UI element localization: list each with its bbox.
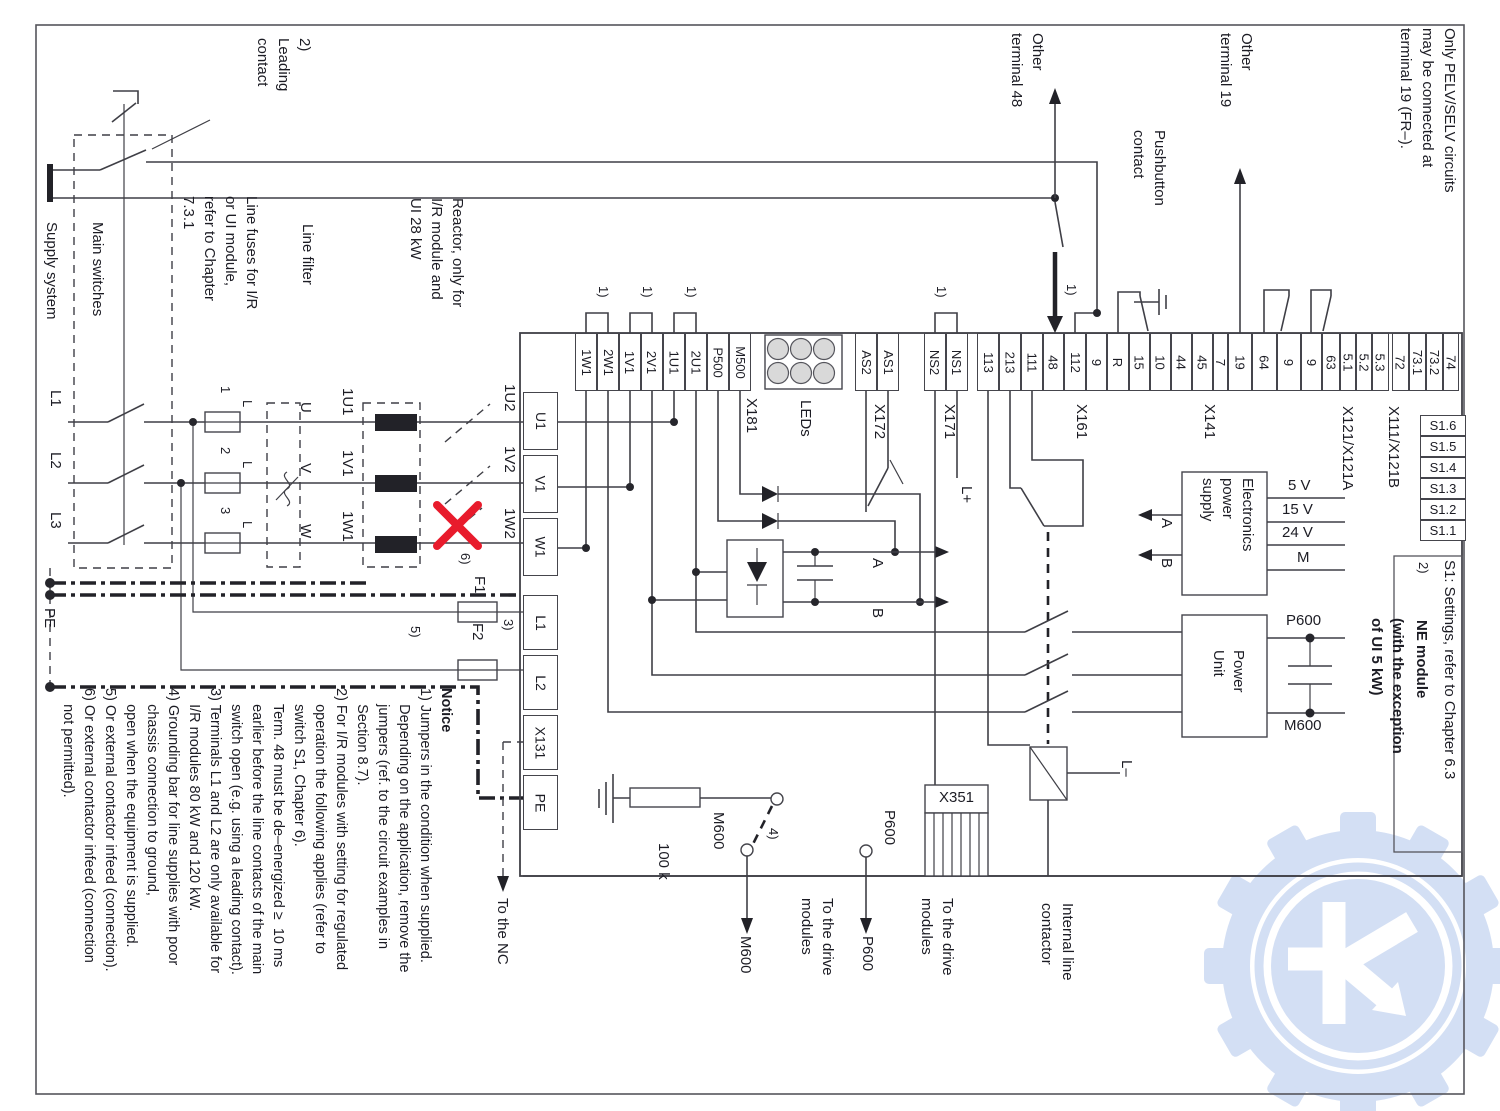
terminal-l1: L1 — [523, 595, 558, 650]
terminal-AS2: AS2 — [855, 333, 877, 391]
watermark-gear-icon — [1204, 812, 1500, 1111]
terminal-9: 9 — [1086, 333, 1107, 391]
terminal-1W1: 1W1 — [575, 333, 597, 391]
terminal-NS2: NS2 — [924, 333, 946, 391]
terminal-M500: M500 — [729, 333, 751, 391]
switch-s1-4: S1.4 — [1420, 457, 1466, 478]
schematic-page: { "ann": { "leading_contact": "2)\nLeadi… — [0, 0, 1500, 1111]
terminal-x131: X131 — [523, 715, 558, 770]
terminal-63: 63 — [1322, 333, 1340, 391]
notice-title: Notice — [438, 688, 454, 732]
terminal-w1: W1 — [523, 518, 558, 576]
terminal-2V1: 2V1 — [641, 333, 663, 391]
terminal-9: 9 — [1277, 333, 1301, 391]
terminal-u1: U1 — [523, 392, 558, 450]
terminal-pe: PE — [523, 775, 558, 830]
terminal-113: 113 — [977, 333, 999, 391]
red-cross-icon — [437, 505, 478, 546]
terminal-P500: P500 — [707, 333, 729, 391]
line-contactor-section — [988, 391, 1182, 876]
terminal-NS1: NS1 — [946, 333, 968, 391]
terminal-5.2: 5.2 — [1356, 333, 1372, 391]
label-p600-dclink: P600 — [1286, 612, 1321, 629]
terminal-1V1: 1V1 — [619, 333, 641, 391]
terminal-v1: V1 — [523, 455, 558, 513]
terminal-1U1: 1U1 — [663, 333, 685, 391]
terminal-112: 112 — [1064, 333, 1086, 391]
terminal-15: 15 — [1129, 333, 1150, 391]
label-x351: X351 — [925, 789, 988, 806]
terminal-19: 19 — [1228, 333, 1252, 391]
terminal-111: 111 — [1021, 333, 1043, 391]
terminal-213: 213 — [999, 333, 1021, 391]
label-15v: 15 V — [1282, 501, 1313, 518]
terminal-64: 64 — [1252, 333, 1277, 391]
terminal-2W1: 2W1 — [597, 333, 619, 391]
terminal-73.2: 73.2 — [1426, 333, 1443, 391]
terminal-2U1: 2U1 — [685, 333, 707, 391]
terminal-9: 9 — [1301, 333, 1322, 391]
terminal-AS1: AS1 — [877, 333, 899, 391]
switch-s1-5: S1.5 — [1420, 436, 1466, 457]
label-m600-dclink: M600 — [1284, 717, 1322, 734]
terminal-7: 7 — [1213, 333, 1228, 391]
label-24v: 24 V — [1282, 524, 1313, 541]
label-5v: 5 V — [1288, 477, 1311, 494]
terminal-74: 74 — [1443, 333, 1459, 391]
switch-s1-1: S1.1 — [1420, 520, 1466, 541]
terminal-72: 72 — [1392, 333, 1409, 391]
terminal-73.1: 73.1 — [1409, 333, 1426, 391]
notice-body: 1) Jumpers in the condition when supplie… — [60, 688, 433, 975]
terminal-10: 10 — [1150, 333, 1171, 391]
switch-s1-2: S1.2 — [1420, 499, 1466, 520]
terminal-44: 44 — [1171, 333, 1192, 391]
terminal-l2: L2 — [523, 655, 558, 710]
terminal-5.3: 5.3 — [1372, 333, 1389, 391]
terminal-R: R — [1107, 333, 1129, 391]
terminal-45: 45 — [1192, 333, 1213, 391]
switch-s1-6: S1.6 — [1420, 415, 1466, 436]
terminal-5.1: 5.1 — [1340, 333, 1356, 391]
terminal-48: 48 — [1043, 333, 1064, 391]
label-m: M — [1297, 549, 1310, 566]
switch-s1-3: S1.3 — [1420, 478, 1466, 499]
